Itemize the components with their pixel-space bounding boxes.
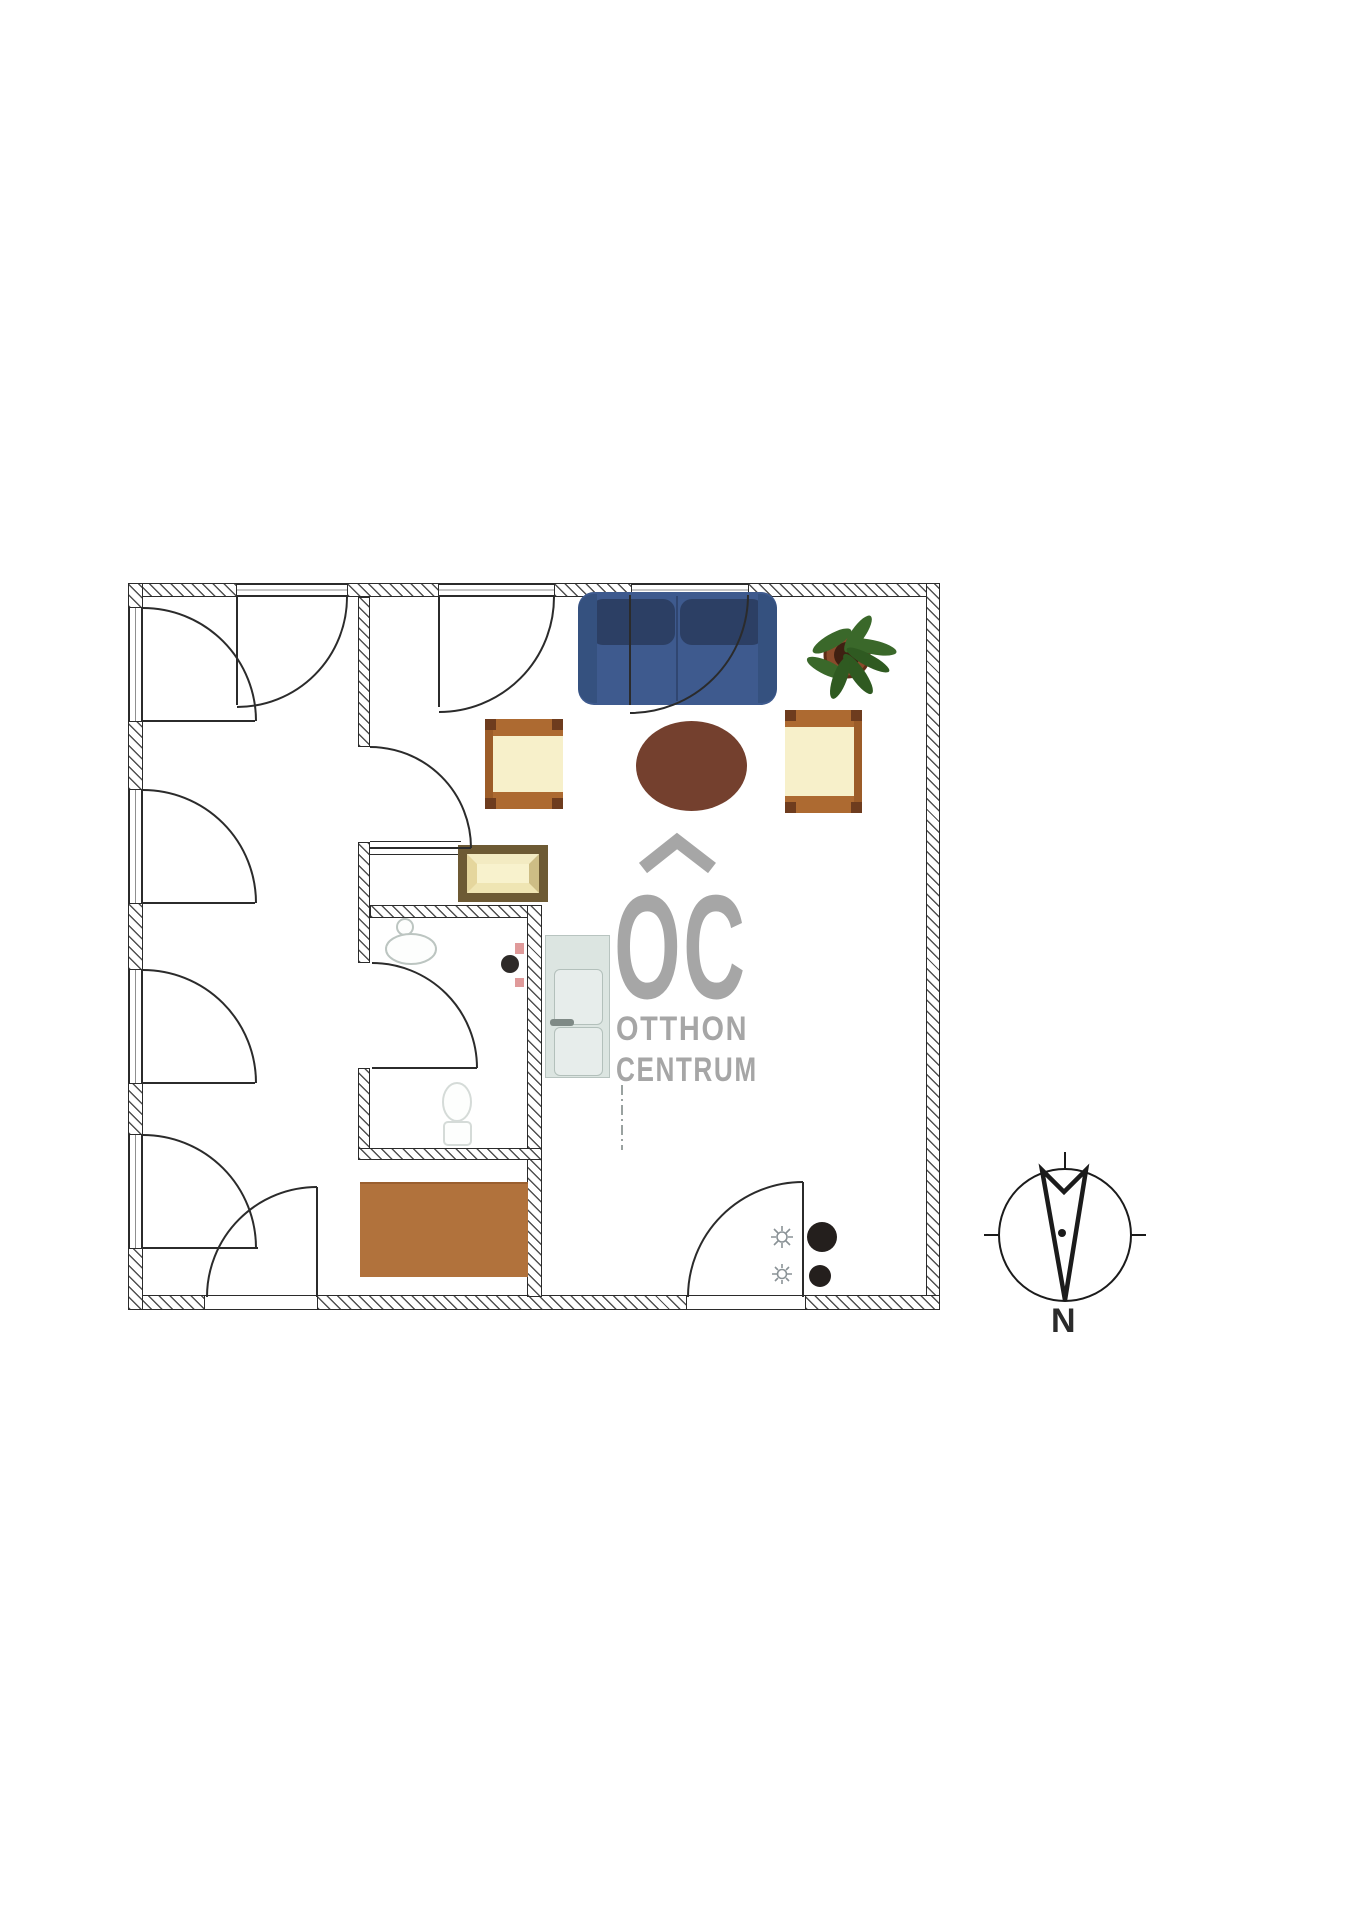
door-swing-arc [207,1187,317,1297]
scanned-floorplan-page: OC OTTHON CENTRUM N [0,0,1357,1920]
washbasin-tap-icon [397,919,413,935]
bathroom-dot [501,955,519,973]
door-swing-arc [143,1135,256,1248]
ceiling-lamp-symbol [771,1226,793,1284]
linework-layer [0,0,1357,1920]
door-swing-arc [372,963,477,1068]
door-swing-arc [143,608,256,721]
towel-rail-icon [515,978,524,987]
compass-icon [984,1152,1146,1301]
watermark-roof-icon [643,841,712,868]
door-swing-arc [237,597,347,707]
door-swing-arc [143,790,256,903]
towel-rail-icon [515,943,524,954]
toilet-tank-icon [444,1122,471,1145]
column-dot [809,1265,831,1287]
washbasin-icon [386,934,436,964]
door-swing-arc [143,970,256,1083]
door-swing-arc [439,597,554,712]
potted-plant-icon [804,612,898,701]
door-swing-arc [630,595,748,713]
column-dot [807,1222,837,1252]
door-swing-arc [370,747,471,848]
toilet-bowl-icon [443,1083,471,1121]
